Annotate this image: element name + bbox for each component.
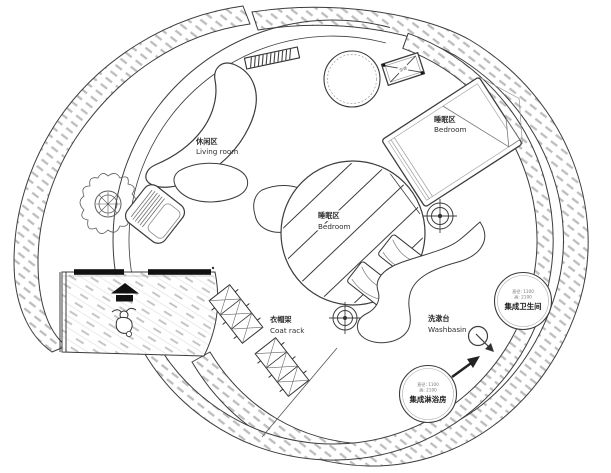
label-coat-rack-zh: 衣帽架 <box>270 315 292 324</box>
label-coat-rack-en: Coat rack <box>270 326 305 335</box>
coat-rack <box>252 335 312 398</box>
coffee-table <box>174 163 248 202</box>
faucet-icon <box>469 327 495 353</box>
label-washbasin-en: Washbasin <box>428 325 467 334</box>
shower-pod-height: 高: 2100 <box>419 387 437 394</box>
ac-unit: 空调 <box>381 53 424 86</box>
toilet-pod-name: 集成卫生间 <box>504 302 542 311</box>
toilet-pod-diameter: 直径: 1100 <box>512 288 534 294</box>
label-living-room-en: Living room <box>196 147 238 156</box>
label-bedroom-upper-en: Bedroom <box>434 125 467 134</box>
flow-arrow <box>452 356 480 377</box>
spotlight-icon <box>329 302 361 334</box>
label-living-room-zh: 休闲区 <box>195 137 218 146</box>
plant-icon <box>80 173 136 233</box>
label-bedroom-center-zh: 睡眠区 <box>318 211 340 220</box>
toilet-pod-height: 高: 2100 <box>514 294 532 301</box>
floor-plan-canvas: 空调 <box>0 0 611 473</box>
round-table <box>324 51 380 107</box>
label-washbasin-zh: 洗漱台 <box>428 314 450 323</box>
label-coat-rack: 衣帽架 Coat rack <box>270 315 305 335</box>
label-washbasin: 洗漱台 Washbasin <box>428 314 467 334</box>
shower-pod-diameter: 直径: 1100 <box>417 381 439 387</box>
label-bedroom-upper-zh: 睡眠区 <box>434 115 456 124</box>
armchair <box>122 181 188 247</box>
wall-shelf <box>244 47 299 69</box>
toilet-pod: 直径: 1100 高: 2100 集成卫生间 <box>495 273 552 330</box>
label-bedroom-center-en: Bedroom <box>318 222 351 231</box>
entrance-corridor <box>60 269 218 356</box>
shower-pod: 直径: 1100 高: 2100 集成淋浴房 <box>400 366 457 423</box>
shower-pod-name: 集成淋浴房 <box>409 395 447 404</box>
reference-dot <box>212 267 214 269</box>
